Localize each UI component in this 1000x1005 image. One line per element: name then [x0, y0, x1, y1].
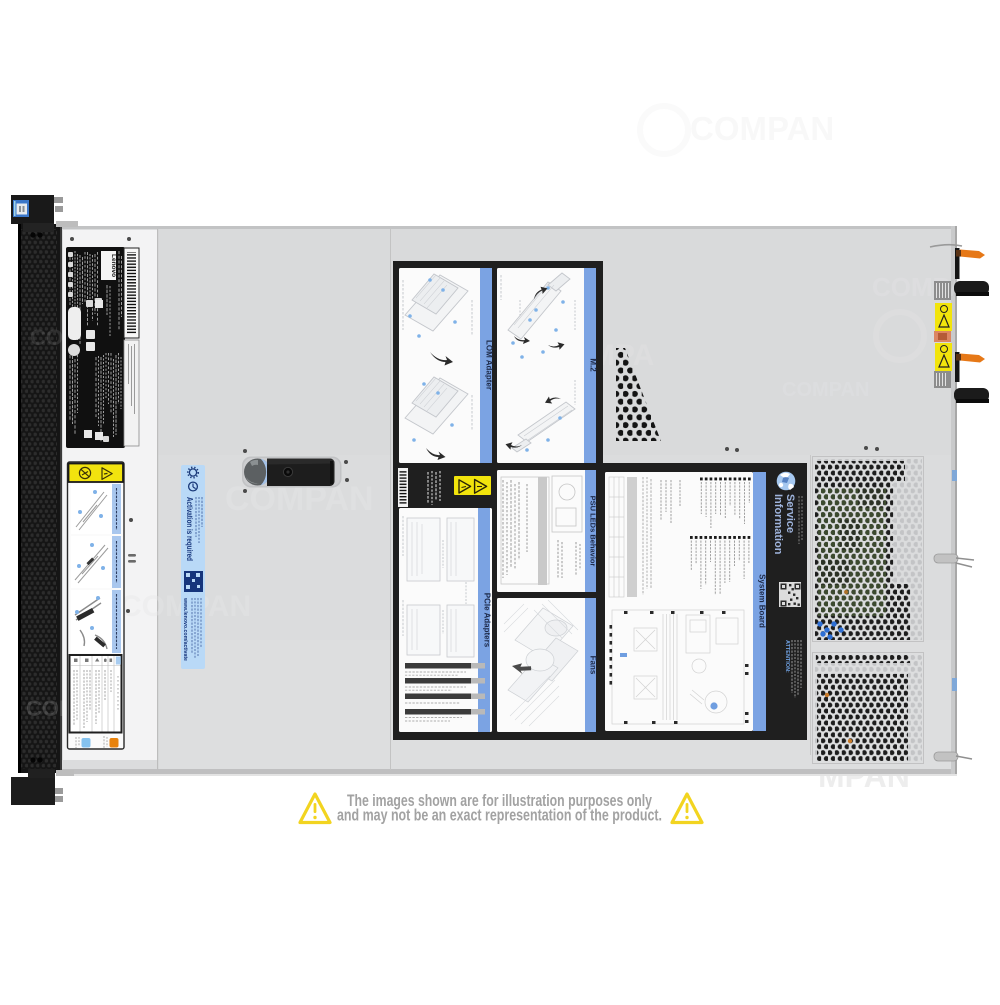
svg-text:Service: Service	[784, 494, 796, 533]
svg-text:CO: CO	[30, 325, 63, 350]
svg-text:LOM Adapter: LOM Adapter	[485, 340, 494, 390]
svg-text:PSU LEDs Behavior: PSU LEDs Behavior	[589, 496, 598, 567]
svg-text:ATTENTION:: ATTENTION:	[784, 640, 790, 673]
svg-text:COMPAN: COMPAN	[782, 379, 869, 401]
svg-text:Lenovo: Lenovo	[110, 254, 117, 277]
svg-text:and may not be an exact repres: and may not be an exact representation o…	[337, 806, 662, 825]
svg-text:PCIe Adapters: PCIe Adapters	[483, 593, 492, 648]
svg-text:Fans: Fans	[589, 656, 598, 675]
svg-text:www.lenovo.com/activate: www.lenovo.com/activate	[182, 597, 188, 661]
svg-text:COMPA: COMPA	[872, 272, 967, 302]
svg-text:COMPAN: COMPAN	[690, 110, 834, 147]
svg-text:Activation is required: Activation is required	[185, 497, 194, 561]
svg-text:Information: Information	[772, 494, 784, 555]
svg-text:M.2: M.2	[589, 358, 598, 372]
svg-text:System Board: System Board	[758, 574, 767, 628]
